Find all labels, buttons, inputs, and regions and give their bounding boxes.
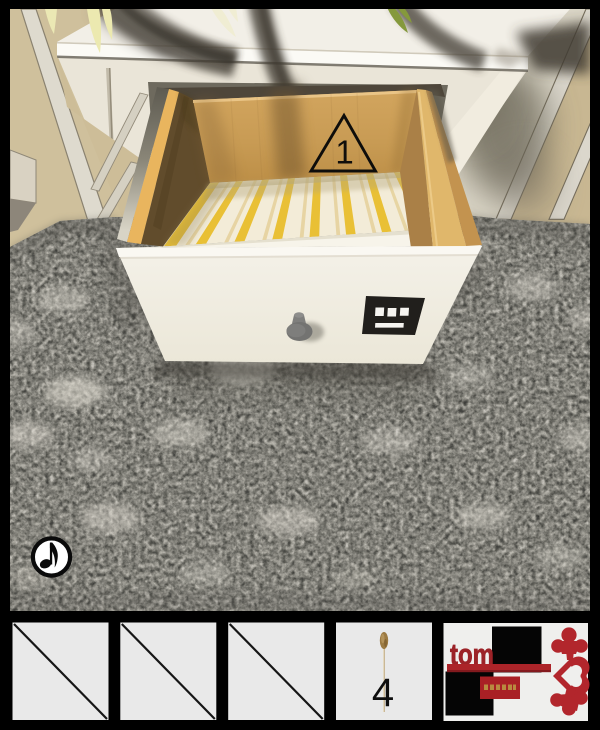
svg-text:1: 1 — [335, 134, 353, 171]
svg-text:4: 4 — [372, 671, 394, 715]
